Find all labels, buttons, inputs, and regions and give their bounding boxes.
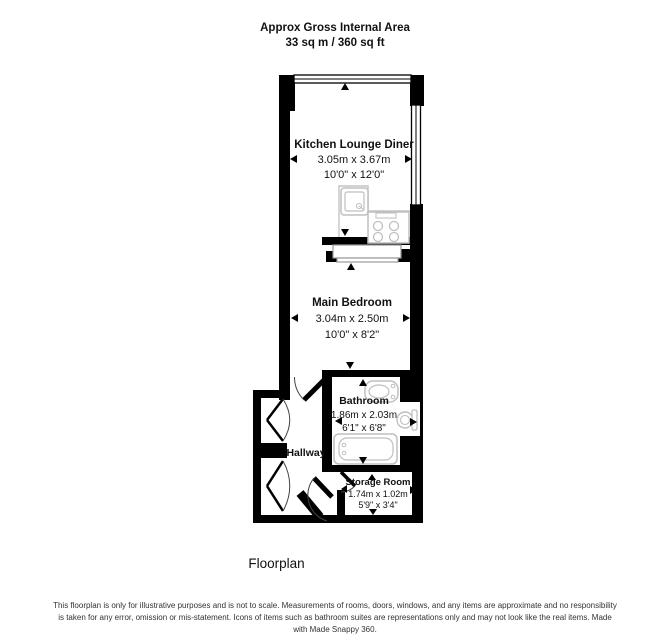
kitchen-fixtures — [339, 186, 410, 243]
closet-bifold-door-upper — [267, 399, 290, 441]
bedroom-arrow-left — [291, 314, 298, 322]
floorplan-svg: Kitchen Lounge Diner 3.05m x 3.67m 10'0"… — [0, 0, 670, 643]
sliding-door-pocket — [333, 245, 401, 262]
storage-dim-metric: 1.74m x 1.02m — [348, 489, 408, 499]
kitchen-label: Kitchen Lounge Diner — [294, 139, 414, 151]
hallway-label: Hallway — [286, 447, 325, 459]
floorplan-caption: Floorplan — [0, 556, 553, 571]
wall-top-right-corner — [410, 75, 424, 106]
kitchen-dim-imperial: 10'0" x 12'0" — [324, 169, 384, 181]
bathroom-arrow-up — [359, 379, 367, 386]
wall-bedroom-bottom — [322, 370, 411, 377]
wall-hall-nook-stub — [261, 443, 287, 458]
bathroom-dim-imperial: 6'1" x 6'8" — [342, 423, 386, 434]
disclaimer-text: This floorplan is only for illustrative … — [50, 600, 620, 636]
kitchen-arrow-up — [341, 83, 349, 90]
hob-icon — [368, 212, 409, 243]
window-right — [412, 105, 421, 205]
wall-right-upper — [410, 204, 423, 370]
bedroom-dim-imperial: 10'0" x 8'2" — [325, 329, 379, 341]
bedroom-label: Main Bedroom — [312, 297, 392, 309]
bedroom-arrow-up — [347, 263, 355, 270]
wall-hall-nook-left — [253, 390, 261, 523]
wall-hall-bottom — [253, 515, 343, 523]
pocket-cap-right — [398, 249, 423, 262]
bedroom-dim-metric: 3.04m x 2.50m — [316, 313, 389, 325]
wall-storage-bottom — [337, 515, 423, 523]
wall-bathroom-bottom — [332, 465, 423, 472]
closet-bifold-door-lower — [267, 461, 290, 511]
kitchen-arrow-down — [341, 229, 349, 236]
bedroom-arrow-right — [403, 314, 410, 322]
kitchen-arrow-left — [290, 155, 297, 163]
window-top — [294, 75, 411, 83]
storage-label: Storage Room — [346, 477, 411, 488]
bedroom-arrow-down — [346, 362, 354, 369]
bathroom-label: Bathroom — [339, 395, 389, 407]
kitchen-dim-metric: 3.05m x 3.67m — [318, 154, 391, 166]
wall-top-left-corner — [279, 75, 295, 111]
toilet-icon — [397, 402, 420, 436]
kitchen-sink-icon — [341, 188, 368, 215]
storage-dim-imperial: 5'9" x 3'4" — [358, 500, 397, 510]
wall-left — [279, 75, 290, 400]
wall-right-storage — [412, 465, 423, 523]
bathroom-dim-metric: 1.86m x 2.03m — [331, 410, 397, 421]
